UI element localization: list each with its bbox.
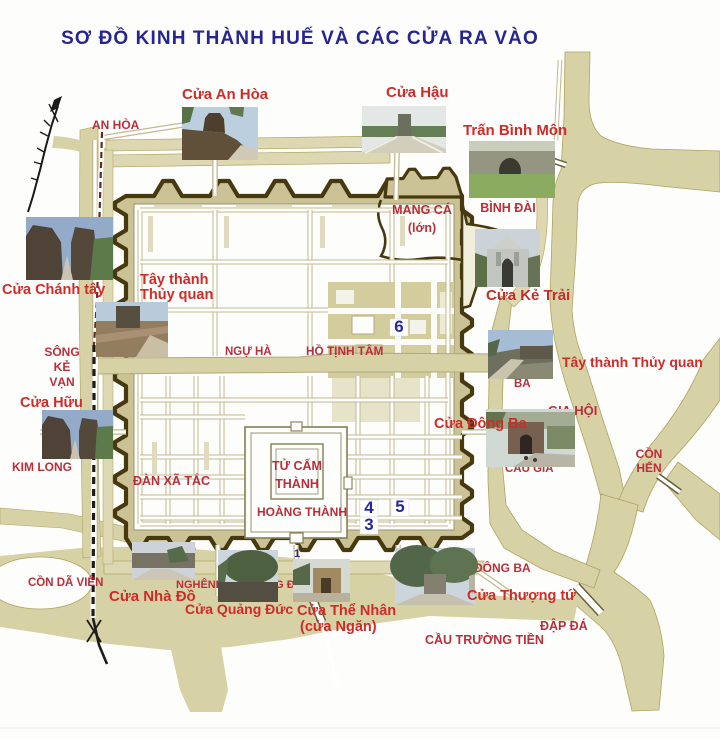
svg-text:Cửa Quảng Đức: Cửa Quảng Đức bbox=[185, 601, 293, 617]
svg-text:3: 3 bbox=[364, 515, 373, 534]
svg-text:SƠ ĐỒ KINH THÀNH HUẾ VÀ CÁC CỬ: SƠ ĐỒ KINH THÀNH HUẾ VÀ CÁC CỬA RA VÀO bbox=[61, 27, 539, 49]
svg-text:BA: BA bbox=[514, 378, 531, 390]
svg-text:6: 6 bbox=[394, 317, 403, 336]
svg-text:ĐẬP ĐÁ: ĐẬP ĐÁ bbox=[540, 618, 588, 633]
svg-text:(lớn): (lớn) bbox=[408, 221, 436, 235]
svg-text:Tây thành Thủy quan: Tây thành Thủy quan bbox=[562, 354, 703, 370]
svg-text:NGỰ HÀ: NGỰ HÀ bbox=[225, 345, 272, 358]
svg-text:AN HÒA: AN HÒA bbox=[92, 117, 140, 132]
svg-text:BÌNH ĐÀI: BÌNH ĐÀI bbox=[480, 200, 536, 215]
svg-text:5: 5 bbox=[395, 497, 404, 516]
svg-text:SÔNG: SÔNG bbox=[44, 344, 79, 359]
svg-text:MANG CÁ: MANG CÁ bbox=[392, 202, 452, 217]
svg-text:Cửa Chánh tây: Cửa Chánh tây bbox=[2, 282, 105, 298]
svg-text:ĐÀN XÃ TẮC: ĐÀN XÃ TẮC bbox=[133, 473, 210, 488]
svg-text:1: 1 bbox=[294, 548, 300, 560]
svg-text:Cửa Nhà Đồ: Cửa Nhà Đồ bbox=[109, 588, 196, 605]
svg-text:Cửa An Hòa: Cửa An Hòa bbox=[182, 86, 269, 103]
svg-text:Cửa Đông Ba: Cửa Đông Ba bbox=[434, 416, 528, 432]
svg-text:HOÀNG THÀNH: HOÀNG THÀNH bbox=[257, 504, 347, 519]
svg-text:CỒN DÃ VIÊN: CỒN DÃ VIÊN bbox=[28, 576, 103, 589]
svg-text:Tây thành: Tây thành bbox=[140, 272, 208, 288]
svg-text:Cửa Kẻ Trải: Cửa Kẻ Trải bbox=[486, 287, 570, 304]
svg-text:Cửa Thể Nhân: Cửa Thể Nhân bbox=[297, 603, 396, 619]
svg-text:CỒN: CỒN bbox=[636, 446, 663, 461]
svg-text:KIM LONG: KIM LONG bbox=[12, 460, 72, 474]
svg-text:TỬ CẤM: TỬ CẤM bbox=[272, 458, 322, 473]
svg-text:HẾN: HẾN bbox=[636, 460, 661, 475]
svg-text:CẦU TRƯỜNG TIỀN: CẦU TRƯỜNG TIỀN bbox=[425, 632, 544, 647]
svg-text:KẺ: KẺ bbox=[54, 359, 71, 374]
svg-text:ĐÔNG BA: ĐÔNG BA bbox=[474, 560, 531, 575]
svg-text:Trấn Bình Môn: Trấn Bình Môn bbox=[463, 122, 567, 139]
svg-text:Cửa Thượng tứ: Cửa Thượng tứ bbox=[467, 588, 576, 604]
svg-text:THÀNH: THÀNH bbox=[275, 476, 319, 491]
svg-text:VẠN: VẠN bbox=[49, 375, 74, 389]
svg-text:HỒ TỊNH TÂM: HỒ TỊNH TÂM bbox=[306, 344, 383, 358]
svg-text:Cửa Hậu: Cửa Hậu bbox=[386, 84, 449, 101]
svg-text:Cửa Hữu: Cửa Hữu bbox=[20, 395, 83, 411]
svg-text:Thủy quan: Thủy quan bbox=[140, 287, 213, 303]
svg-text:(cửa Ngăn): (cửa Ngăn) bbox=[300, 619, 377, 635]
